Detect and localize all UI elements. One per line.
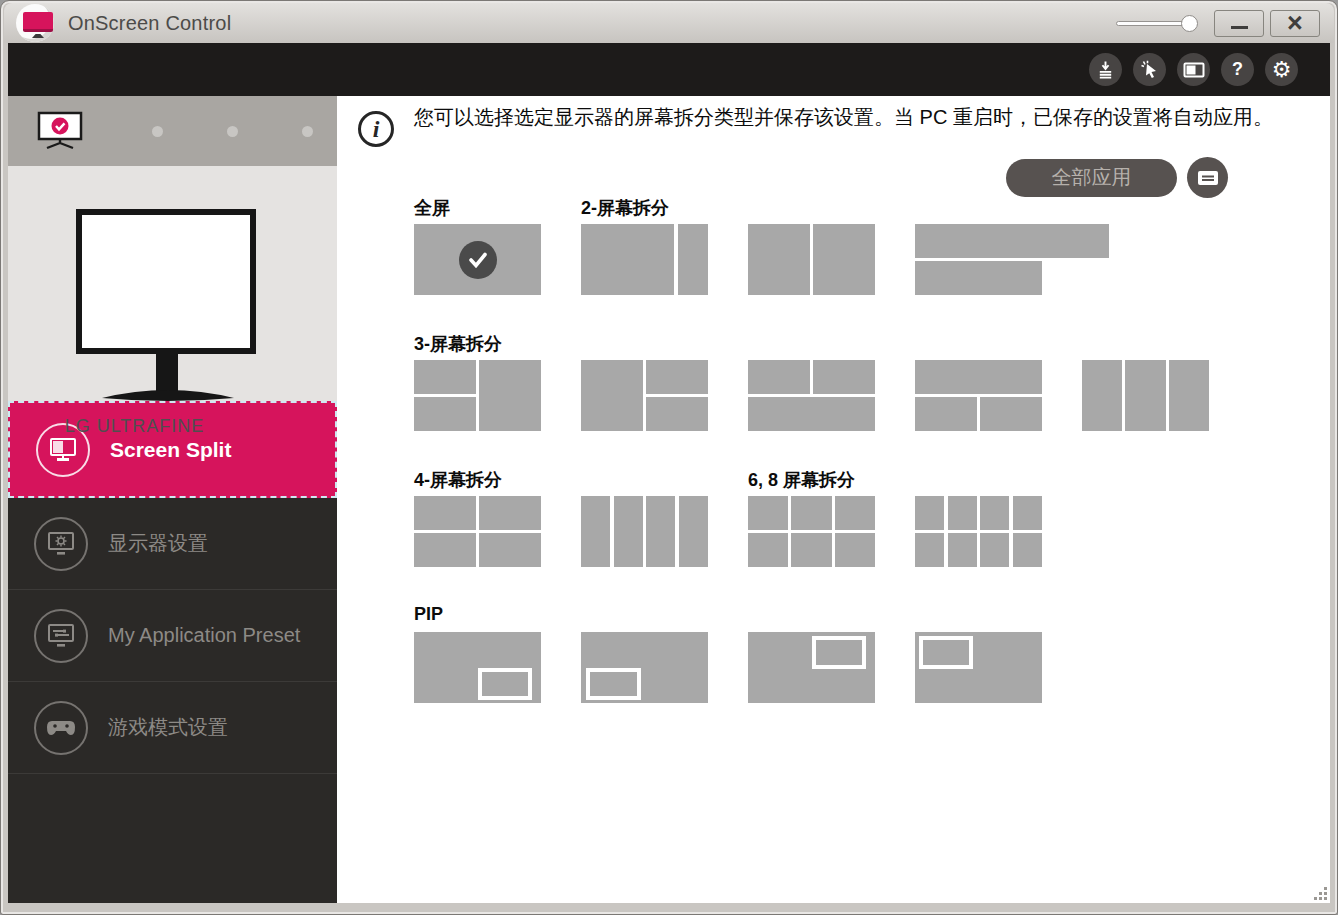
apply-target-monitor-button[interactable]	[1187, 157, 1228, 198]
sidebar-item-label: Screen Split	[110, 438, 231, 462]
section-label: 4-屏幕拆分	[414, 468, 748, 490]
monitor-preview: LG ULTRAFINE	[8, 166, 337, 401]
auto-arrange-cursor-icon[interactable]	[1133, 53, 1166, 86]
monitor-tab-active-icon[interactable]	[32, 111, 88, 151]
monitor-image	[76, 209, 256, 354]
layout-thumb-pip-top-right[interactable]	[748, 632, 875, 703]
layout-thumb-2-left-wide[interactable]	[581, 224, 708, 295]
section-label: 3-屏幕拆分	[414, 332, 1249, 354]
download-icon[interactable]	[1089, 53, 1122, 86]
monitor-selector	[8, 96, 337, 166]
opacity-slider-knob[interactable]	[1181, 15, 1198, 32]
help-icon[interactable]: ?	[1221, 53, 1254, 86]
monitor-tab-dot[interactable]	[302, 126, 313, 137]
sidebar-item-label: 游戏模式设置	[108, 714, 228, 741]
layout-thumb-2-equal-rows[interactable]	[915, 224, 1042, 295]
minimize-button[interactable]	[1214, 10, 1264, 37]
section-label: 全屏	[414, 196, 581, 218]
window-title: OnScreen Control	[68, 12, 231, 35]
sidebar-item-game-mode[interactable]: 游戏模式设置	[8, 682, 337, 774]
minimize-icon	[1231, 26, 1248, 29]
layout-thumb-3-left-stack-right-full[interactable]	[414, 360, 541, 431]
game-mode-icon	[34, 701, 88, 755]
layout-thumb-3-top-full-bottom-pair[interactable]	[915, 360, 1042, 431]
layout-thumb-4-columns[interactable]	[581, 496, 708, 567]
pip-window	[478, 668, 533, 701]
sidebar-item-my-application-preset[interactable]: My Application Preset	[8, 590, 337, 682]
monitor-stand	[98, 388, 238, 404]
display-mode-icon[interactable]	[1177, 53, 1210, 86]
opacity-slider[interactable]	[1116, 14, 1194, 32]
layout-thumb-3-left-full-right-stack[interactable]	[581, 360, 708, 431]
resize-grip[interactable]	[1314, 887, 1328, 901]
section-pip: PIP	[414, 604, 1082, 703]
section-label: 2-屏幕拆分	[581, 196, 1082, 218]
section-label: 6, 8 屏幕拆分	[748, 468, 1082, 490]
layout-thumb-6-grid[interactable]	[748, 496, 875, 567]
section-full-screen: 全屏	[414, 196, 581, 308]
layout-thumb-pip-top-left[interactable]	[915, 632, 1042, 703]
section-label: PIP	[414, 604, 1082, 626]
apply-all-button[interactable]: 全部应用	[1006, 159, 1177, 197]
sidebar-item-monitor-settings[interactable]: 显示器设置	[8, 498, 337, 590]
pip-window	[812, 636, 867, 669]
layout-thumb-8-grid[interactable]	[915, 496, 1042, 567]
app-preset-icon	[34, 609, 88, 663]
section-split-3: 3-屏幕拆分	[414, 332, 1249, 431]
selected-check-icon	[459, 241, 497, 279]
app-logo-icon	[16, 3, 56, 43]
monitor-icon	[1196, 169, 1220, 187]
layout-thumb-2-equal-columns[interactable]	[748, 224, 875, 295]
sidebar: LG ULTRAFINE Screen Split	[8, 96, 337, 903]
layout-thumb-3-columns[interactable]	[1082, 360, 1209, 431]
close-button[interactable]: ×	[1270, 10, 1320, 37]
info-icon: i	[358, 111, 394, 147]
layout-thumb-pip-bottom-right[interactable]	[414, 632, 541, 703]
section-split-6-8: 6, 8 屏幕拆分	[748, 468, 1082, 567]
split-sections: 全屏2-屏幕拆分3-屏幕拆分4-屏幕拆分6, 8 屏幕拆分PIP	[414, 196, 1254, 740]
settings-gear-icon[interactable]: ⚙	[1265, 53, 1298, 86]
titlebar: OnScreen Control ×	[4, 3, 1334, 43]
layout-thumb-3-top-pair-bottom-full[interactable]	[748, 360, 875, 431]
monitor-name-label: LG ULTRAFINE	[8, 416, 261, 437]
app-window: OnScreen Control ×	[0, 0, 1338, 915]
info-text: 您可以选择选定显示器的屏幕拆分类型并保存该设置。当 PC 重启时，已保存的设置将…	[414, 102, 1319, 133]
toolbar: ? ⚙	[8, 43, 1330, 96]
layout-thumb-pip-bottom-left[interactable]	[581, 632, 708, 703]
main-panel: i 您可以选择选定显示器的屏幕拆分类型并保存该设置。当 PC 重启时，已保存的设…	[337, 96, 1330, 903]
layout-thumb-full[interactable]	[414, 224, 541, 295]
monitor-settings-icon	[34, 517, 88, 571]
monitor-tab-dot[interactable]	[152, 126, 163, 137]
pip-window	[919, 636, 974, 669]
layout-thumb-4-grid[interactable]	[414, 496, 541, 567]
section-split-4: 4-屏幕拆分	[414, 468, 748, 567]
monitor-tab-dot[interactable]	[227, 126, 238, 137]
sidebar-item-label: My Application Preset	[108, 624, 300, 647]
sidebar-item-label: 显示器设置	[108, 530, 208, 557]
section-split-2: 2-屏幕拆分	[581, 196, 1082, 295]
pip-window	[586, 668, 641, 701]
